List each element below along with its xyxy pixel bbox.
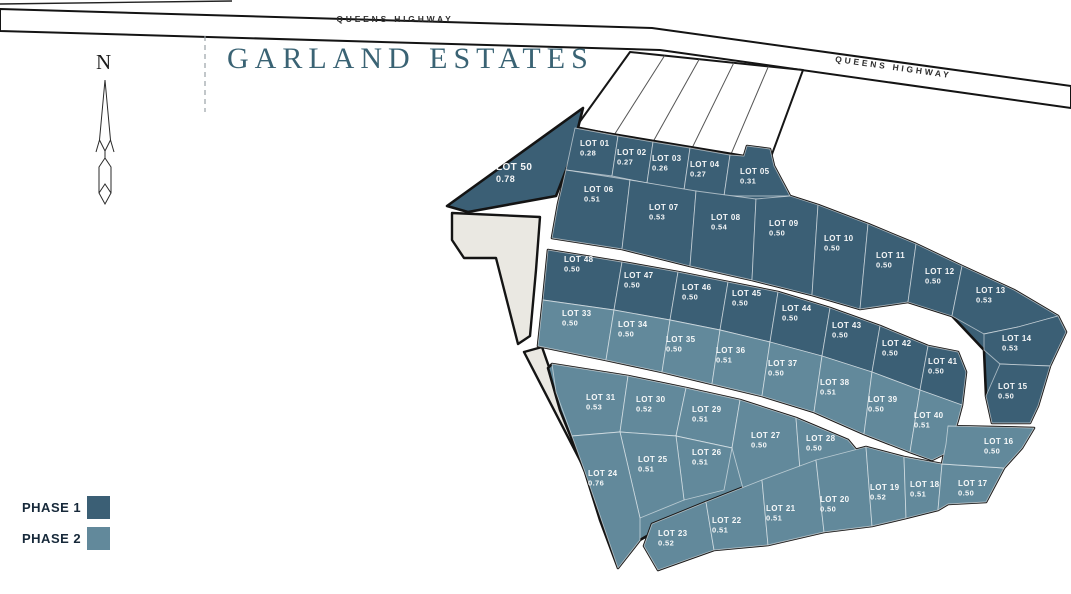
north-arrow-barb-right xyxy=(111,140,115,152)
page-title: GARLAND ESTATES xyxy=(227,42,567,76)
lot-08-shape[interactable] xyxy=(690,191,756,280)
lot-10-shape[interactable] xyxy=(812,205,868,309)
north-arrow-fletching-icon xyxy=(99,158,111,204)
legend-label-phase1: PHASE 1 xyxy=(22,500,86,515)
lot-20-shape[interactable] xyxy=(816,447,872,532)
queens-highway-label-top: QUEENS HIGHWAY xyxy=(336,14,453,24)
legend-swatch-phase1 xyxy=(87,496,110,519)
lot-09-shape[interactable] xyxy=(752,196,818,295)
legend-swatch-phase2 xyxy=(87,527,110,550)
lot-08[interactable]: LOT 080.54 xyxy=(690,191,756,280)
lot-02[interactable]: LOT 020.27 xyxy=(612,136,653,183)
road-edge-line xyxy=(0,1,232,4)
lot-11[interactable]: LOT 110.50 xyxy=(860,224,916,309)
lot-20[interactable]: LOT 200.50 xyxy=(816,447,872,532)
legend-row-phase1: PHASE 1 xyxy=(22,495,110,519)
site-plan-page: LOT 500.78LOT 010.28LOT 020.27LOT 030.26… xyxy=(0,0,1071,594)
lot-17[interactable]: LOT 170.50 xyxy=(938,464,1004,510)
lot-16[interactable]: LOT 160.50 xyxy=(942,426,1034,468)
lot-18[interactable]: LOT 180.51 xyxy=(904,457,942,518)
lot-04[interactable]: LOT 040.27 xyxy=(684,148,730,196)
lot-33[interactable]: LOT 330.50 xyxy=(538,300,614,360)
phase-legend: PHASE 1 PHASE 2 xyxy=(22,495,110,557)
legend-label-phase2: PHASE 2 xyxy=(22,531,86,546)
lot-09[interactable]: LOT 090.50 xyxy=(752,196,818,295)
lot-35[interactable]: LOT 350.50 xyxy=(662,320,720,384)
north-arrow-head-icon xyxy=(100,80,111,151)
legend-row-phase2: PHASE 2 xyxy=(22,526,110,550)
north-arrow-barb-left xyxy=(96,140,100,152)
site-plan-map: LOT 500.78LOT 010.28LOT 020.27LOT 030.26… xyxy=(0,0,1071,594)
lot-19[interactable]: LOT 190.52 xyxy=(866,447,906,526)
lot-10[interactable]: LOT 100.50 xyxy=(812,205,868,309)
lot-06-shape[interactable] xyxy=(552,170,630,249)
lot-36[interactable]: LOT 360.51 xyxy=(712,330,770,396)
lot-06[interactable]: LOT 060.51 xyxy=(552,170,630,249)
open-parcel xyxy=(452,213,540,344)
lot-03[interactable]: LOT 030.26 xyxy=(647,142,690,190)
lot-01[interactable]: LOT 010.28 xyxy=(566,128,618,176)
compass-north-label: N xyxy=(96,50,111,75)
